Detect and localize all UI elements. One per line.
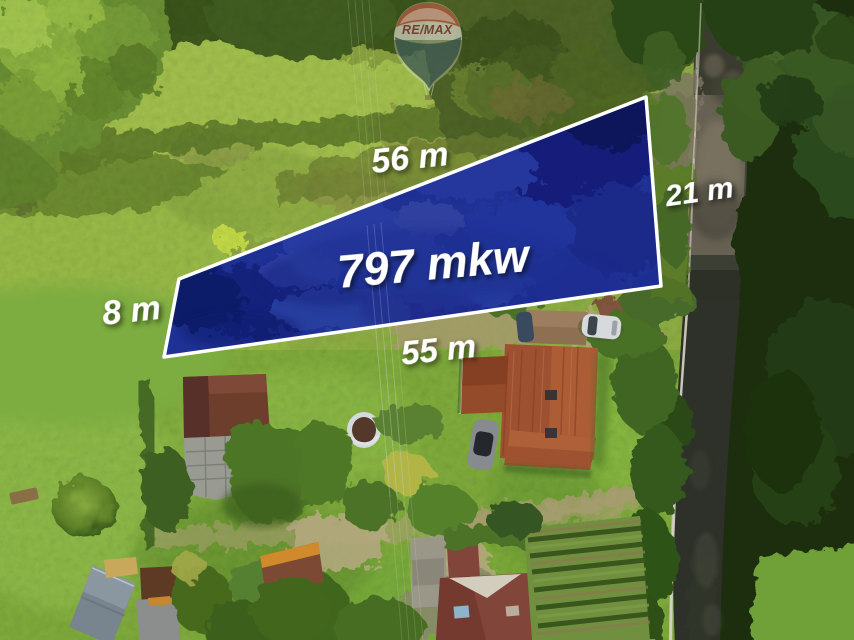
svg-text:56 m: 56 m xyxy=(369,135,450,181)
svg-text:55 m: 55 m xyxy=(399,327,478,372)
svg-text:8 m: 8 m xyxy=(100,289,162,333)
svg-text:RE/MAX: RE/MAX xyxy=(402,23,453,37)
